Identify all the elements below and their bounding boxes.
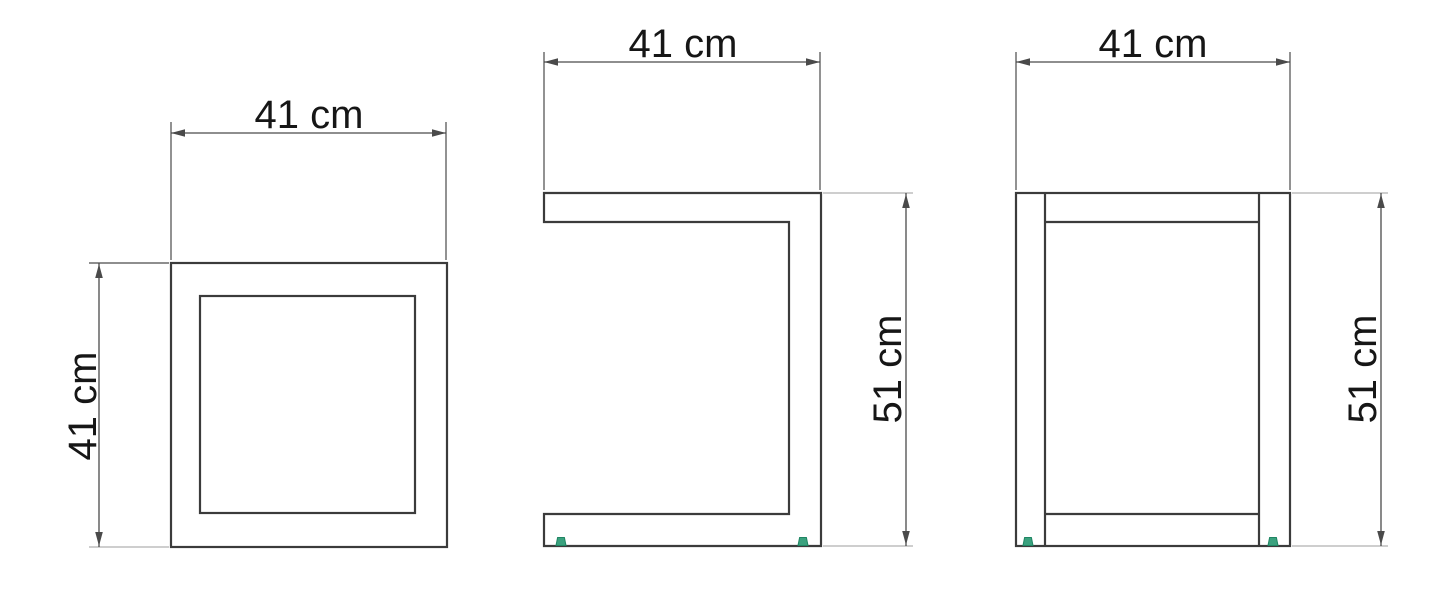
side-view-width-label: 41 cm xyxy=(629,22,738,66)
side-view-height-dimension: 51 cm xyxy=(823,193,913,546)
front-view-outline xyxy=(1016,193,1290,546)
front-view-height-label: 51 cm xyxy=(1341,315,1385,424)
top-view-width-label: 41 cm xyxy=(255,93,364,137)
front-view: 41 cm 51 cm xyxy=(1016,22,1388,546)
arrowhead-up-icon xyxy=(95,264,103,278)
front-view-height-dimension: 51 cm xyxy=(1292,193,1388,546)
top-view-depth-label: 41 cm xyxy=(61,352,105,461)
arrowhead-left-icon xyxy=(1016,58,1030,66)
arrowhead-right-icon xyxy=(1276,58,1290,66)
arrowhead-right-icon xyxy=(806,58,820,66)
front-view-width-dimension: 41 cm xyxy=(1016,22,1290,190)
top-view-outline xyxy=(171,263,447,547)
arrowhead-down-icon xyxy=(1377,531,1385,545)
top-view: 41 cm 41 cm xyxy=(61,93,447,547)
front-view-width-label: 41 cm xyxy=(1099,22,1208,66)
side-view-outline xyxy=(544,193,821,546)
arrowhead-up-icon xyxy=(902,194,910,208)
arrowhead-down-icon xyxy=(902,531,910,545)
side-view: 41 cm 51 cm xyxy=(544,22,913,546)
arrowhead-right-icon xyxy=(432,129,446,137)
front-view-outer-edge xyxy=(1016,193,1290,546)
foot-glide-icon xyxy=(798,538,808,546)
top-view-outer-edge xyxy=(171,263,447,547)
technical-drawing-canvas: 41 cm 41 cm 41 cm xyxy=(0,0,1452,598)
top-view-width-dimension: 41 cm xyxy=(171,93,446,260)
arrowhead-down-icon xyxy=(95,532,103,546)
top-view-inner-edge xyxy=(200,296,415,513)
side-view-height-label: 51 cm xyxy=(866,315,910,424)
side-view-width-dimension: 41 cm xyxy=(544,22,820,190)
arrowhead-up-icon xyxy=(1377,194,1385,208)
arrowhead-left-icon xyxy=(544,58,558,66)
foot-glide-icon xyxy=(556,538,566,546)
arrowhead-left-icon xyxy=(171,129,185,137)
foot-glide-icon xyxy=(1268,538,1278,546)
top-view-depth-dimension: 41 cm xyxy=(61,263,169,547)
foot-glide-icon xyxy=(1023,538,1033,546)
furniture-dimension-drawing: 41 cm 41 cm 41 cm xyxy=(0,0,1452,598)
